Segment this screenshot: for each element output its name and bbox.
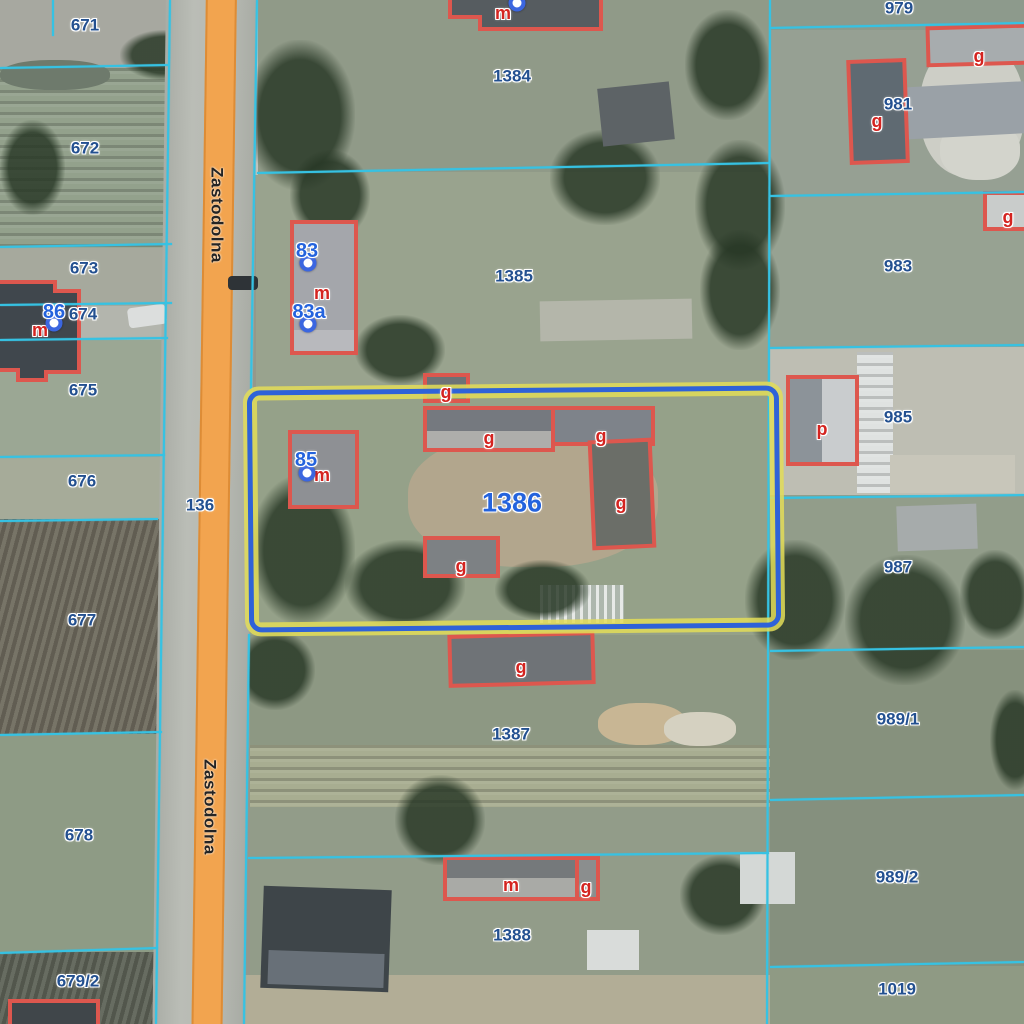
address-number-label: 85 — [295, 450, 317, 470]
address-point-marker — [509, 0, 526, 12]
building-use-label: g — [616, 494, 627, 512]
parcel-number-label: 1384 — [493, 68, 531, 85]
building-use-label: g — [516, 658, 527, 676]
parcel-number-label: 981 — [884, 96, 912, 113]
building-use-label: m — [503, 876, 519, 894]
parcel-number-label: 136 — [186, 497, 214, 514]
parcel-number-label: 1387 — [492, 726, 530, 743]
building-use-label: g — [484, 429, 495, 447]
building-use-label: g — [456, 557, 467, 575]
parcel-number-label: 989/2 — [876, 869, 919, 886]
parcel-number-label: 671 — [71, 17, 99, 34]
address-number-label: 83 — [296, 241, 318, 261]
parcel-number-label: 672 — [71, 140, 99, 157]
parcel-number-label: 987 — [884, 559, 912, 576]
building-use-label: g — [441, 383, 452, 401]
parcel-number-label: 677 — [68, 612, 96, 629]
map-canvas[interactable]: 1386 671672673674675676677678679/2136138… — [0, 0, 1024, 1024]
building-use-label: m — [314, 284, 330, 302]
parcel-number-label: 679/2 — [57, 973, 100, 990]
building-use-label: g — [596, 427, 607, 445]
building-use-label: p — [817, 420, 828, 438]
labels-layer: 1386 671672673674675676677678679/2136138… — [0, 0, 1024, 1024]
parcel-number-label: 1388 — [493, 927, 531, 944]
building-use-label: g — [1003, 208, 1014, 226]
building-use-label: g — [581, 878, 592, 896]
parcel-number-label: 675 — [69, 382, 97, 399]
parcel-number-label: 1019 — [878, 981, 916, 998]
selected-parcel-label: 1386 — [482, 490, 542, 517]
parcel-number-label: 676 — [68, 473, 96, 490]
parcel-number-label: 1385 — [495, 268, 533, 285]
address-number-label: 83a — [292, 302, 325, 322]
street-name-label: Zastodolna — [202, 759, 219, 855]
parcel-number-label: 673 — [70, 260, 98, 277]
parcel-number-label: 678 — [65, 827, 93, 844]
parcel-number-label: 989/1 — [877, 711, 920, 728]
building-use-label: g — [872, 112, 883, 130]
address-number-label: 86 — [43, 302, 65, 322]
parcel-number-label: 985 — [884, 409, 912, 426]
parcel-number-label: 979 — [885, 0, 913, 17]
parcel-number-label: 674 — [69, 306, 97, 323]
street-name-label: Zastodolna — [209, 167, 226, 263]
parcel-number-label: 983 — [884, 258, 912, 275]
building-use-label: g — [974, 47, 985, 65]
